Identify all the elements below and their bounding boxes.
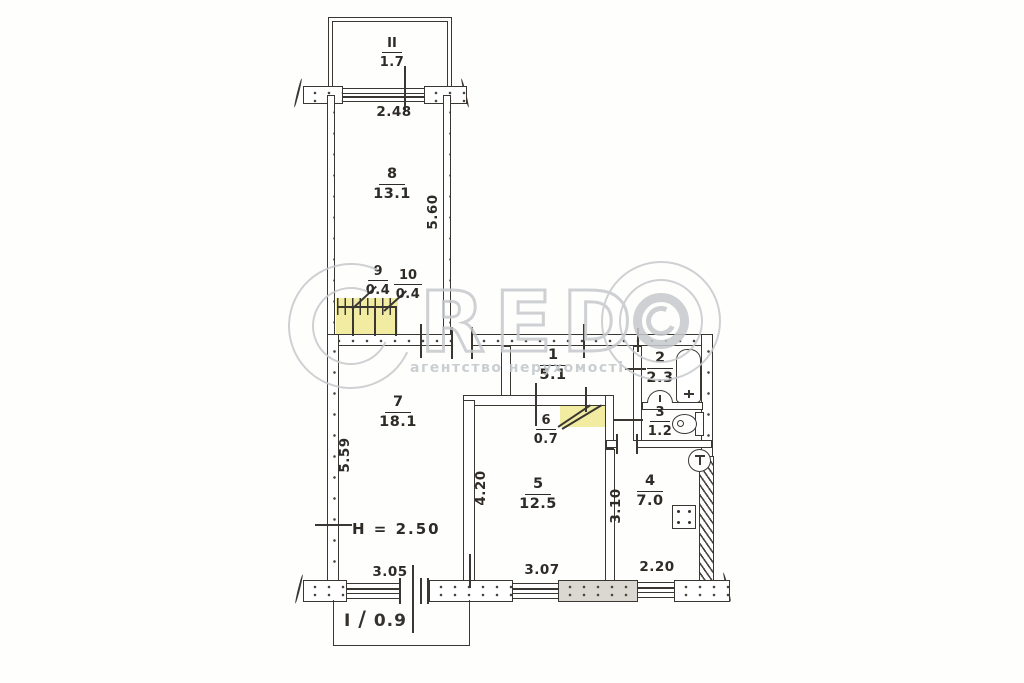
- room-area-balcony-top: 1.7: [380, 53, 405, 70]
- heater-mark: [699, 455, 701, 465]
- room-area-balcony-bottom: 0.9: [374, 611, 407, 631]
- wall-room7-hall: [501, 346, 511, 401]
- bathtub-faucet: [684, 393, 694, 395]
- closet-partition: [395, 306, 397, 336]
- dimension-tick: [315, 524, 352, 526]
- closet-partition: [352, 306, 354, 336]
- wall-segment: [429, 580, 513, 602]
- door-jamb: [451, 327, 453, 359]
- room-label-balcony-bottom: I / 0.9: [344, 607, 407, 631]
- room-area-4: 7.0: [636, 491, 663, 509]
- dim-bottom-room7: 3.05: [362, 564, 418, 580]
- dim-top-width: 2.48: [366, 104, 422, 120]
- room-area-1: 5.1: [539, 365, 566, 383]
- wall-kitchen-top-right: [637, 440, 712, 448]
- door-jamb: [616, 434, 618, 454]
- dim-corridor-length: 5.60: [425, 182, 441, 242]
- window-room5: [513, 583, 558, 599]
- dimension-tick: [420, 324, 422, 358]
- dim-room5-depth: 4.20: [473, 458, 489, 518]
- room-label-4: 4 7.0: [620, 472, 680, 509]
- door-jamb: [471, 327, 473, 359]
- room-number-6: 6: [536, 414, 555, 430]
- room-label-8: 8 13.1: [360, 165, 424, 202]
- room-label-balcony-top: II 1.7: [362, 34, 422, 69]
- door-jamb: [399, 578, 401, 604]
- room-number-5: 5: [525, 477, 551, 495]
- wall-main-top-left: [327, 334, 452, 346]
- room-number-3: 3: [650, 406, 669, 422]
- room-area-8: 13.1: [373, 184, 411, 202]
- room-label-1: 1 5.1: [523, 346, 583, 383]
- dim-bottom-room5: 3.07: [514, 562, 570, 578]
- room-number-9: 9: [368, 265, 387, 281]
- door-jamb: [427, 578, 429, 604]
- wall-corridor-left: [327, 95, 335, 335]
- room-area-5: 12.5: [519, 494, 557, 512]
- window-room7: [347, 583, 400, 599]
- dim-ceiling-height: H = 2.50: [352, 520, 438, 538]
- heater-mark: [695, 455, 705, 457]
- room-number-1: 1: [540, 348, 566, 366]
- room-label-3: 3 1.2: [632, 403, 688, 438]
- room-number-8: 8: [379, 167, 405, 185]
- room-label-7: 7 18.1: [366, 393, 430, 430]
- room-number-2: 2: [647, 351, 673, 369]
- window-top-balcony: [343, 88, 424, 102]
- door-jamb: [420, 578, 422, 604]
- room-number-balcony-top: II: [382, 37, 402, 53]
- dim-kitchen-depth: 3.10: [608, 476, 624, 536]
- wall-segment: [303, 86, 343, 104]
- room-label-2: 2 2.3: [630, 349, 690, 386]
- room-area-9: 0.4: [366, 281, 391, 298]
- dimension-tick: [469, 554, 471, 588]
- label-slash: /: [358, 607, 367, 631]
- room-area-6: 0.7: [534, 430, 559, 447]
- wall-segment-shaded: [558, 580, 638, 602]
- room-number-10: 10: [394, 269, 422, 285]
- room-label-5: 5 12.5: [506, 475, 570, 512]
- room-number-4: 4: [637, 474, 663, 492]
- wall-flare: [293, 78, 302, 108]
- room-area-2: 2.3: [646, 368, 673, 386]
- floor-plan-scan: II 1.7 2.48 8 13.1 5.60 9 0.4 10 0.4 5.: [0, 0, 1024, 683]
- room-number-7: 7: [385, 395, 411, 413]
- sink-faucet: [659, 395, 661, 402]
- wall-main-top-right: [472, 334, 712, 346]
- watermark-subtitle: агентство нерухомості: [410, 360, 625, 376]
- room-area-10: 0.4: [396, 285, 421, 302]
- room-area-7: 18.1: [379, 412, 417, 430]
- window-kitchen: [638, 582, 674, 598]
- dim-left-height: 5.59: [337, 425, 353, 485]
- wall-segment: [303, 580, 347, 602]
- room-label-10: 10 0.4: [390, 266, 426, 301]
- room-label-6: 6 0.7: [524, 411, 568, 446]
- wall-corridor-right: [443, 95, 451, 340]
- room-area-3: 1.2: [648, 422, 673, 439]
- wall-segment: [674, 580, 730, 602]
- dim-bottom-kitchen: 2.20: [629, 559, 685, 575]
- wall-hall-room5: [463, 395, 614, 406]
- closet-partition: [374, 306, 376, 336]
- dimension-tick: [583, 324, 585, 358]
- room-number-balcony-bottom: I: [344, 611, 351, 631]
